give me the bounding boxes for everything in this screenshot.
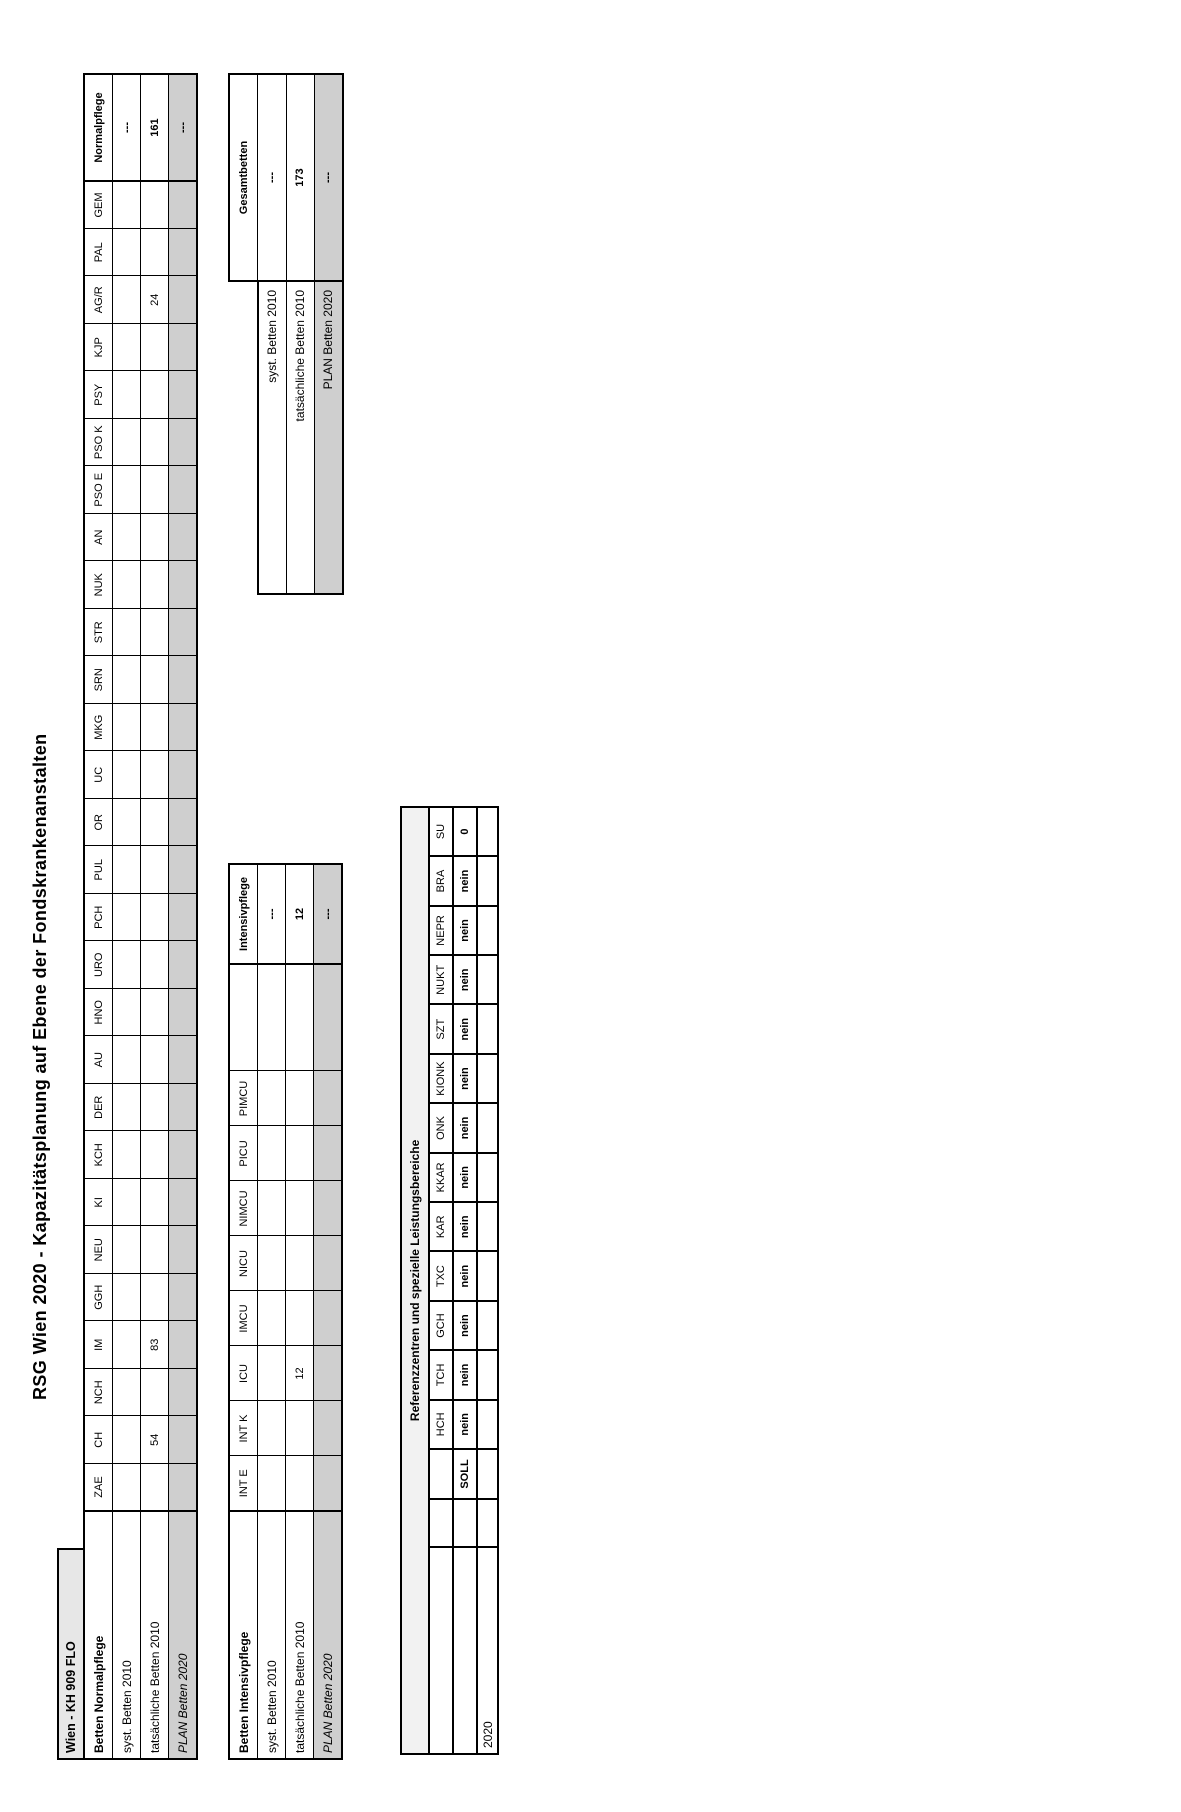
spacer-cell (229, 281, 258, 594)
col-header: PICU (229, 1126, 258, 1181)
value-cell (141, 656, 169, 704)
value-cell (314, 1071, 343, 1126)
value-cell (113, 1226, 141, 1274)
section-header: Referenzzentren und spezielle Leistungsb… (401, 807, 429, 1754)
empty-cell (477, 1449, 498, 1499)
value-cell (169, 656, 198, 704)
col-header: PSO E (84, 466, 113, 514)
filler-cell (286, 964, 314, 1071)
row-label: syst. Betten 2010 (258, 1511, 286, 1759)
value-cell: nein (453, 1350, 477, 1399)
value-cell (169, 941, 198, 989)
row-label-header: Betten Normalpflege (84, 1511, 113, 1759)
value-cell (141, 1464, 169, 1512)
value-cell (258, 1401, 286, 1456)
value-cell (113, 514, 141, 562)
row-label: PLAN Betten 2020 (314, 1511, 343, 1759)
col-header: HCH (429, 1400, 453, 1449)
value-cell (141, 1369, 169, 1417)
value-cell (113, 751, 141, 799)
value-cell (113, 1274, 141, 1322)
row-label: SOLL (453, 1449, 477, 1499)
col-header: PSY (84, 371, 113, 419)
col-header: INT K (229, 1401, 258, 1456)
value-cell (169, 1464, 198, 1512)
sum-value-cell: 12 (286, 864, 314, 964)
value-cell (141, 1226, 169, 1274)
value-cell (169, 1084, 198, 1132)
value-cell (169, 1036, 198, 1084)
value-cell (477, 1153, 498, 1202)
col-header: PIMCU (229, 1071, 258, 1126)
col-header: KCH (84, 1131, 113, 1179)
col-header: IMCU (229, 1291, 258, 1346)
value-cell (113, 894, 141, 942)
value-cell (169, 1274, 198, 1322)
value-cell (169, 799, 198, 847)
value-cell (258, 1181, 286, 1236)
empty-cell (453, 1547, 477, 1754)
value-cell: nein (453, 955, 477, 1004)
col-header: KIONK (429, 1054, 453, 1103)
col-header: MKG (84, 704, 113, 752)
value-cell (286, 1071, 314, 1126)
value-cell (314, 1291, 343, 1346)
value-cell (113, 846, 141, 894)
value-cell (477, 1202, 498, 1251)
value-cell: 83 (141, 1321, 169, 1369)
value-cell: nein (453, 1054, 477, 1103)
value-cell (113, 799, 141, 847)
col-header: AN (84, 514, 113, 562)
value-cell (258, 1236, 286, 1291)
row-label: tatsächliche Betten 2010 (286, 281, 314, 594)
value-cell (113, 1369, 141, 1417)
value-cell: nein (453, 1103, 477, 1152)
sum-value-cell: --- (113, 74, 141, 181)
value-cell (258, 1346, 286, 1401)
value-cell (141, 799, 169, 847)
value-cell (141, 704, 169, 752)
col-header: PCH (84, 894, 113, 942)
value-cell (169, 609, 198, 657)
col-header: AU (84, 1036, 113, 1084)
document-page: RSG Wien 2020 - Kapazitätsplanung auf Eb… (0, 0, 1181, 1812)
col-header: NCH (84, 1369, 113, 1417)
value-cell (314, 1346, 343, 1401)
col-header: NEU (84, 1226, 113, 1274)
empty-cell (429, 1547, 453, 1754)
value-cell (141, 324, 169, 372)
value-cell (113, 941, 141, 989)
value-cell (169, 1416, 198, 1464)
value-cell: nein (453, 1301, 477, 1350)
col-header: NUK (84, 561, 113, 609)
value-cell (169, 419, 198, 467)
value-cell (113, 609, 141, 657)
value-cell: nein (453, 1202, 477, 1251)
value-cell (141, 941, 169, 989)
col-header: NEPR (429, 906, 453, 955)
col-header: IM (84, 1321, 113, 1369)
value-cell (169, 846, 198, 894)
value-cell (141, 561, 169, 609)
filler-cell (314, 964, 343, 1071)
col-header: PUL (84, 846, 113, 894)
value-cell (477, 1103, 498, 1152)
value-cell (169, 1369, 198, 1417)
value-cell (169, 229, 198, 277)
value-cell (141, 1036, 169, 1084)
value-cell: nein (453, 856, 477, 905)
value-cell: 0 (453, 807, 477, 857)
col-header: ICU (229, 1346, 258, 1401)
col-header: NUKT (429, 955, 453, 1004)
row-label: tatsächliche Betten 2010 (141, 1511, 169, 1759)
value-cell (169, 514, 198, 562)
normalpflege-table: Betten NormalpflegeZAECHNCHIMGGHNEUKIKCH… (83, 73, 198, 1760)
empty-cell (453, 1499, 477, 1547)
value-cell (113, 371, 141, 419)
col-header: KI (84, 1179, 113, 1227)
col-header: KKAR (429, 1153, 453, 1202)
value-cell (113, 466, 141, 514)
sum-col-header: Intensivpflege (229, 864, 258, 964)
value-cell (477, 906, 498, 955)
value-cell: nein (453, 906, 477, 955)
intensivpflege-table: Betten IntensivpflegeINT EINT KICUIMCUNI… (228, 863, 343, 1760)
value-cell (141, 419, 169, 467)
value-cell (113, 1321, 141, 1369)
col-header: OR (84, 799, 113, 847)
value-cell (141, 1274, 169, 1322)
value-cell (314, 1181, 343, 1236)
value-cell (169, 894, 198, 942)
value-cell (169, 1131, 198, 1179)
col-header: INT E (229, 1456, 258, 1511)
empty-cell (429, 1449, 453, 1499)
col-header: NICU (229, 1236, 258, 1291)
empty-cell (429, 1499, 453, 1547)
row-label: syst. Betten 2010 (258, 281, 287, 594)
value-cell (477, 1350, 498, 1399)
value-cell (286, 1401, 314, 1456)
value-cell (477, 856, 498, 905)
col-header: GCH (429, 1301, 453, 1350)
value-cell (286, 1181, 314, 1236)
value-cell (258, 1291, 286, 1346)
value-cell (314, 1126, 343, 1181)
value-cell (113, 1131, 141, 1179)
sum-value-cell: --- (169, 74, 198, 181)
row-label: PLAN Betten 2020 (169, 1511, 198, 1759)
row-label: syst. Betten 2010 (113, 1511, 141, 1759)
value-cell (169, 989, 198, 1037)
value-cell: 54 (141, 1416, 169, 1464)
value-cell (113, 1084, 141, 1132)
value-cell: 12 (286, 1346, 314, 1401)
value-cell (141, 181, 169, 229)
col-header: CH (84, 1416, 113, 1464)
value-cell (141, 371, 169, 419)
value-cell (258, 1126, 286, 1181)
gesamtbetten-header: Gesamtbetten (229, 74, 258, 281)
value-cell (477, 1004, 498, 1053)
value-cell (169, 1179, 198, 1227)
value-cell: nein (453, 1004, 477, 1053)
value-cell (113, 704, 141, 752)
value-cell (113, 1416, 141, 1464)
value-cell (113, 656, 141, 704)
col-header: URO (84, 941, 113, 989)
col-header: SZT (429, 1004, 453, 1053)
value-cell (141, 466, 169, 514)
value-cell (113, 1179, 141, 1227)
sum-value-cell: --- (258, 74, 287, 281)
filler-cell (258, 964, 286, 1071)
value-cell: 24 (141, 276, 169, 324)
value-cell (141, 1084, 169, 1132)
col-header: TXC (429, 1251, 453, 1300)
col-header: GGH (84, 1274, 113, 1322)
value-cell (113, 229, 141, 277)
value-cell (169, 276, 198, 324)
value-cell (169, 324, 198, 372)
col-header: TCH (429, 1350, 453, 1399)
col-header: GEM (84, 181, 113, 229)
empty-cell (477, 1499, 498, 1547)
sum-value-cell: --- (314, 864, 343, 964)
value-cell (113, 1036, 141, 1084)
value-cell (314, 1236, 343, 1291)
col-header: KAR (429, 1202, 453, 1251)
value-cell (169, 561, 198, 609)
value-cell (141, 1131, 169, 1179)
value-cell (169, 1321, 198, 1369)
value-cell (113, 419, 141, 467)
value-cell (477, 955, 498, 1004)
row-label: PLAN Betten 2020 (314, 281, 343, 594)
referenzzentren-table: Referenzzentren und spezielle Leistungsb… (400, 806, 499, 1755)
value-cell (141, 894, 169, 942)
col-header: AG/R (84, 276, 113, 324)
col-header: KJP (84, 324, 113, 372)
filler-cell (229, 964, 258, 1071)
value-cell: nein (453, 1153, 477, 1202)
col-header: ONK (429, 1103, 453, 1152)
value-cell (141, 846, 169, 894)
value-cell (113, 324, 141, 372)
value-cell (169, 371, 198, 419)
col-header: UC (84, 751, 113, 799)
value-cell (286, 1236, 314, 1291)
value-cell (286, 1456, 314, 1511)
col-header: ZAE (84, 1464, 113, 1512)
col-header: DER (84, 1084, 113, 1132)
gesamtbetten-table: Gesamtbettensyst. Betten 2010---tatsächl… (228, 73, 344, 595)
value-cell (258, 1071, 286, 1126)
page-title: RSG Wien 2020 - Kapazitätsplanung auf Eb… (30, 733, 51, 1400)
value-cell (169, 466, 198, 514)
sum-value-cell: --- (258, 864, 286, 964)
value-cell (113, 989, 141, 1037)
value-cell (258, 1456, 286, 1511)
row-label: 2020 (477, 1547, 498, 1754)
value-cell (141, 1179, 169, 1227)
value-cell (477, 1251, 498, 1300)
value-cell: nein (453, 1251, 477, 1300)
value-cell (286, 1291, 314, 1346)
value-cell (141, 989, 169, 1037)
row-label: tatsächliche Betten 2010 (286, 1511, 314, 1759)
value-cell (314, 1456, 343, 1511)
value-cell (141, 751, 169, 799)
value-cell (113, 276, 141, 324)
facility-header: Wien - KH 909 FLO (57, 1548, 85, 1760)
value-cell (113, 181, 141, 229)
col-header: HNO (84, 989, 113, 1037)
value-cell (141, 514, 169, 562)
value-cell (169, 1226, 198, 1274)
value-cell (314, 1401, 343, 1456)
col-header: STR (84, 609, 113, 657)
sum-value-cell: --- (314, 74, 343, 281)
value-cell (477, 807, 498, 857)
value-cell (477, 1054, 498, 1103)
value-cell (141, 609, 169, 657)
sum-col-header: Normalpflege (84, 74, 113, 181)
col-header: NIMCU (229, 1181, 258, 1236)
col-header: PSO K (84, 419, 113, 467)
value-cell (141, 229, 169, 277)
col-header: BRA (429, 856, 453, 905)
col-header: SRN (84, 656, 113, 704)
row-label-header: Betten Intensivpflege (229, 1511, 258, 1759)
value-cell (477, 1301, 498, 1350)
col-header: SU (429, 807, 453, 857)
col-header: PAL (84, 229, 113, 277)
value-cell: nein (453, 1400, 477, 1449)
value-cell (169, 751, 198, 799)
value-cell (477, 1400, 498, 1449)
sum-value-cell: 173 (286, 74, 314, 281)
value-cell (286, 1126, 314, 1181)
value-cell (169, 181, 198, 229)
value-cell (113, 561, 141, 609)
value-cell (169, 704, 198, 752)
sum-value-cell: 161 (141, 74, 169, 181)
value-cell (113, 1464, 141, 1512)
